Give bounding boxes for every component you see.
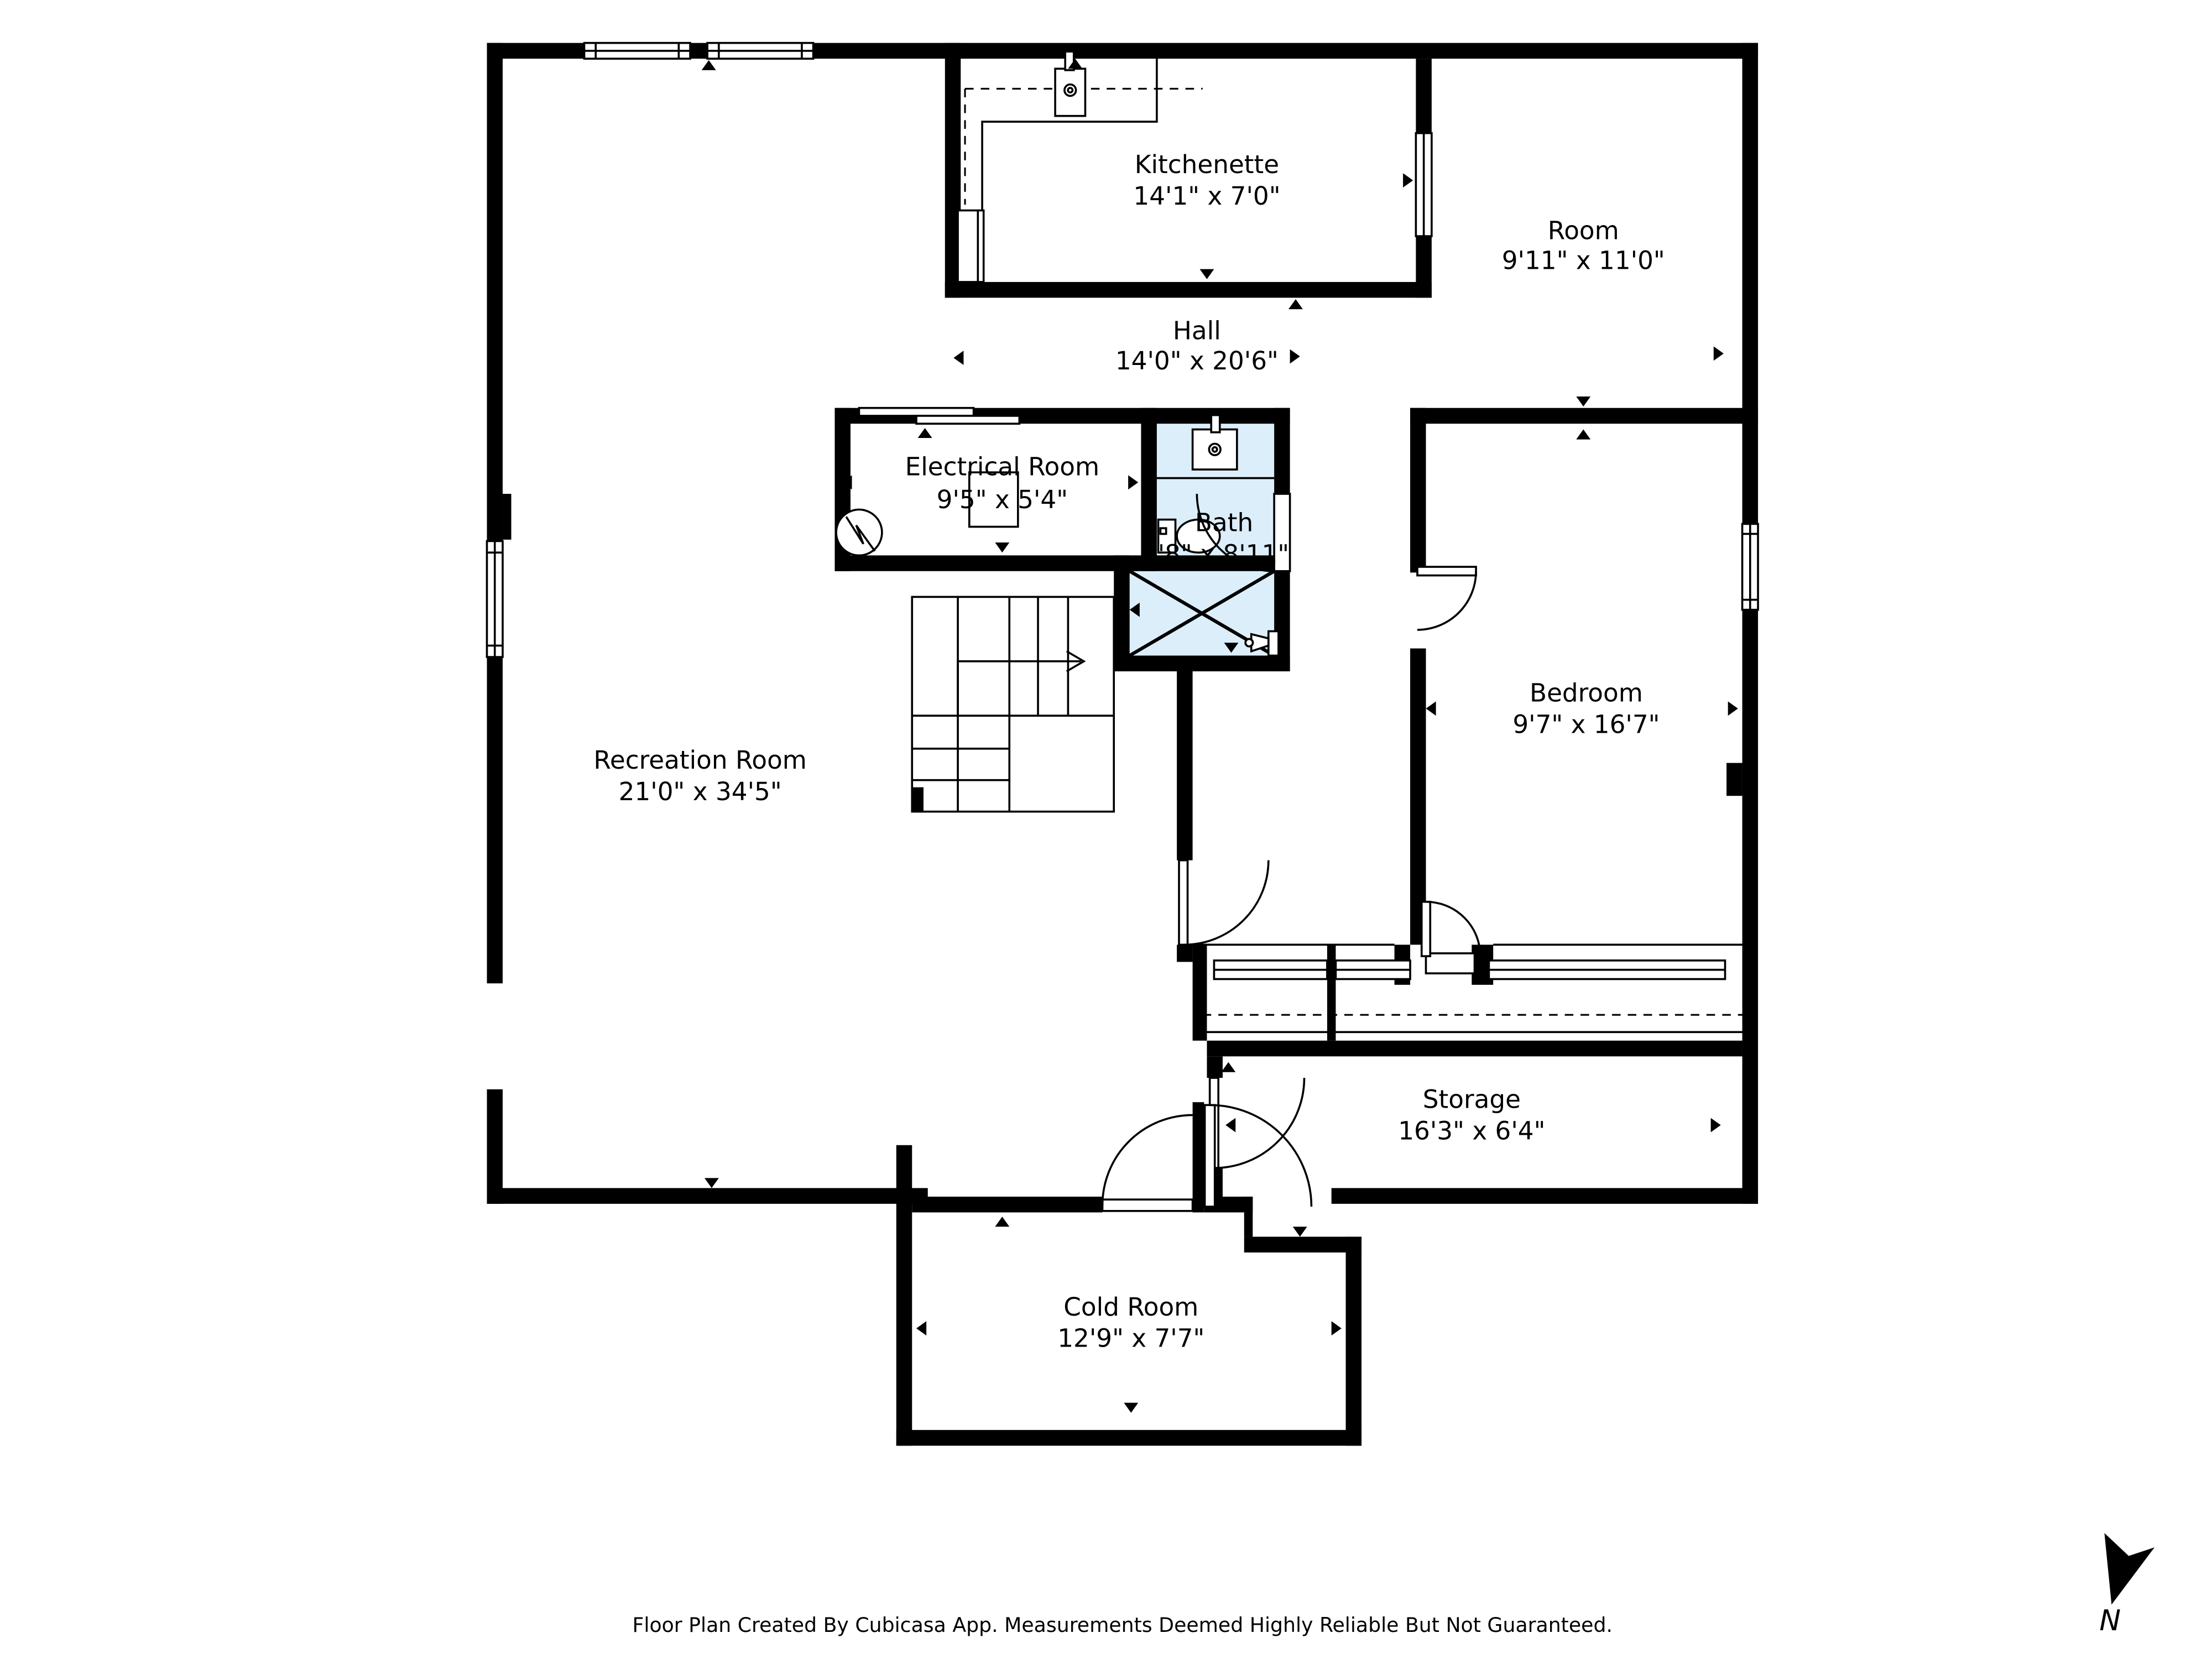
label-room-dims: 9'11" x 11'0" (1502, 246, 1665, 275)
label-bath: Bath (1195, 508, 1253, 537)
label-bedroom-dims: 9'7" x 16'7" (1512, 709, 1660, 739)
label-electrical-room-dims: 9'5" x 5'4" (937, 485, 1068, 514)
window-top-2 (707, 43, 813, 59)
kitchen-sink-icon (1055, 51, 1085, 116)
north-label: N (2099, 1604, 2121, 1637)
label-kitchenette-dims: 14'1" x 7'0" (1133, 181, 1280, 211)
staircase (912, 597, 1114, 811)
room-labels: Kitchenette 14'1" x 7'0" Room 9'11" x 11… (593, 150, 1665, 1353)
label-cold-room-dims: 12'9" x 7'7" (1057, 1324, 1204, 1353)
floor-plan-canvas: Kitchenette 14'1" x 7'0" Room 9'11" x 11… (0, 0, 2212, 1659)
window-top-1 (585, 43, 691, 59)
north-arrow-icon (2104, 1533, 2154, 1604)
label-recreation-room: Recreation Room (593, 745, 807, 775)
label-hall-dims: 14'0" x 20'6" (1115, 346, 1279, 375)
window-left-wall (487, 541, 503, 657)
cold-room-door-left (1103, 1115, 1193, 1211)
bedroom-corridor-door (1422, 902, 1480, 973)
hall-south-door (1179, 860, 1269, 945)
north-indicator: N (2099, 1533, 2154, 1637)
label-recreation-room-dims: 21'0" x 34'5" (619, 777, 782, 806)
label-kitchenette: Kitchenette (1135, 150, 1279, 179)
floor-plan-page: Kitchenette 14'1" x 7'0" Room 9'11" x 11… (0, 0, 2212, 1659)
label-hall: Hall (1173, 316, 1221, 345)
bedroom-entry-door (1417, 567, 1476, 630)
appliance-icon (958, 211, 984, 282)
label-cold-room: Cold Room (1063, 1292, 1198, 1322)
label-storage: Storage (1423, 1084, 1521, 1114)
footer-disclaimer: Floor Plan Created By Cubicasa App. Meas… (633, 1613, 1613, 1637)
label-storage-dims: 16'3" x 6'4" (1398, 1116, 1545, 1145)
label-bedroom: Bedroom (1530, 678, 1643, 707)
label-electrical-room: Electrical Room (905, 452, 1099, 481)
stair-direction-arrow (958, 661, 1081, 716)
label-bath-dims: 4'8" x 8'11" (1142, 539, 1289, 568)
windows (487, 43, 1759, 979)
label-room: Room (1548, 216, 1619, 245)
storage-door (1210, 1078, 1305, 1168)
window-right-wall-bedroom (1743, 524, 1758, 609)
electrical-panel-icon (836, 509, 882, 555)
